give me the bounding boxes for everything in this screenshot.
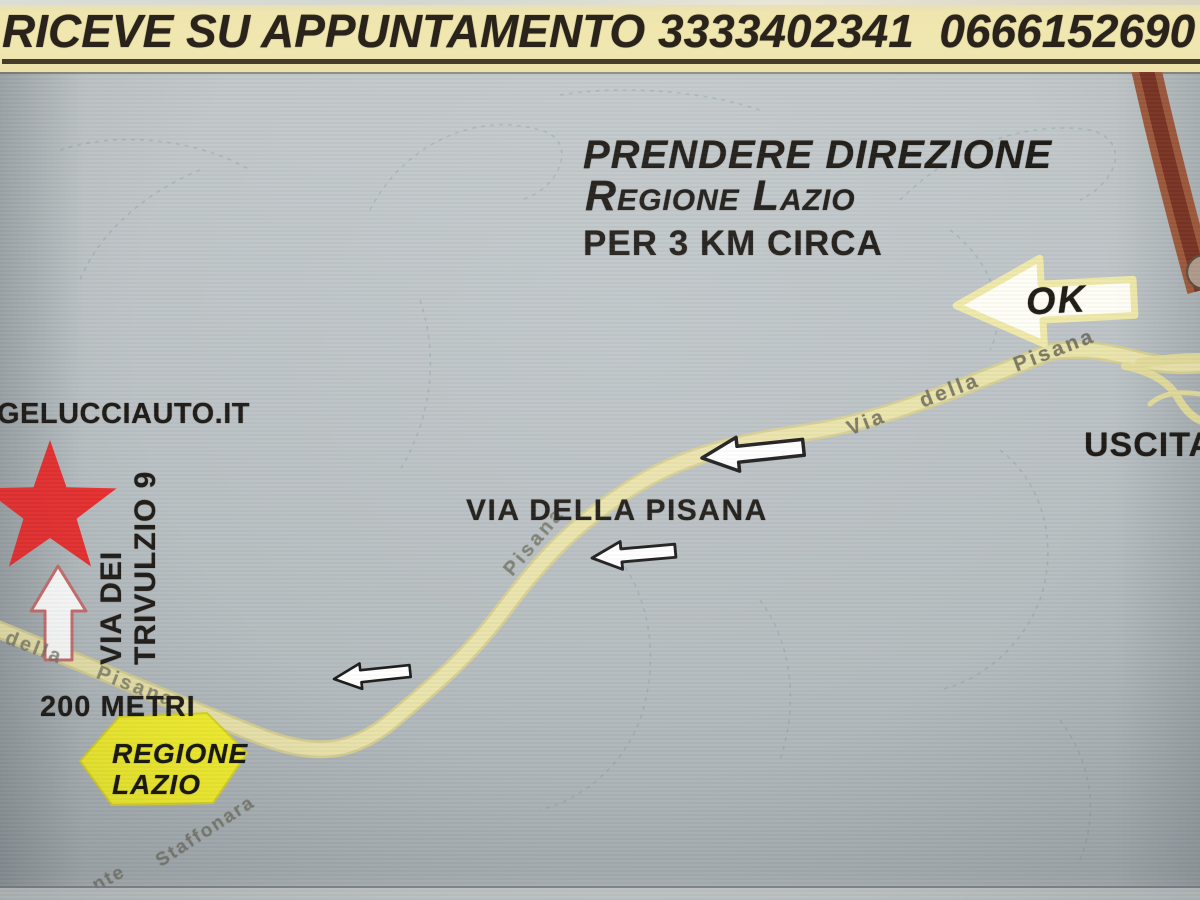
website-label: GELUCCIAUTO.IT [0,398,250,431]
main-road-label: VIA DELLA PISANA [466,494,768,528]
regione-lazio-sign-line-1: REGIONE [112,738,248,770]
street-address-line-2: TRIVULZIO 9 [129,443,163,665]
street-address-vertical: VIA DEI TRIVULZIO 9 [95,443,169,665]
map-photo: Via della Pisana della Pisana Pisana Sta… [0,0,1200,900]
ok-arrow-label: OK [1025,278,1088,324]
directions-line-3: PER 3 KM CIRCA [583,224,883,264]
exit-label: USCITA [1084,426,1200,465]
directions-line-2: Regione Lazio [585,172,856,221]
appointment-banner: RICEVE SU APPUNTAMENTO 3333402341 066615… [0,0,1200,72]
appointment-text: RICEVE SU APPUNTAMENTO 3333402341 066615… [2,4,1200,64]
photo-top-edge [0,0,1200,5]
street-address-line-1: VIA DEI [95,443,129,665]
distance-label: 200 METRI [40,691,196,724]
regione-lazio-sign-line-2: LAZIO [112,769,201,801]
photo-bottom-edge [0,886,1200,900]
